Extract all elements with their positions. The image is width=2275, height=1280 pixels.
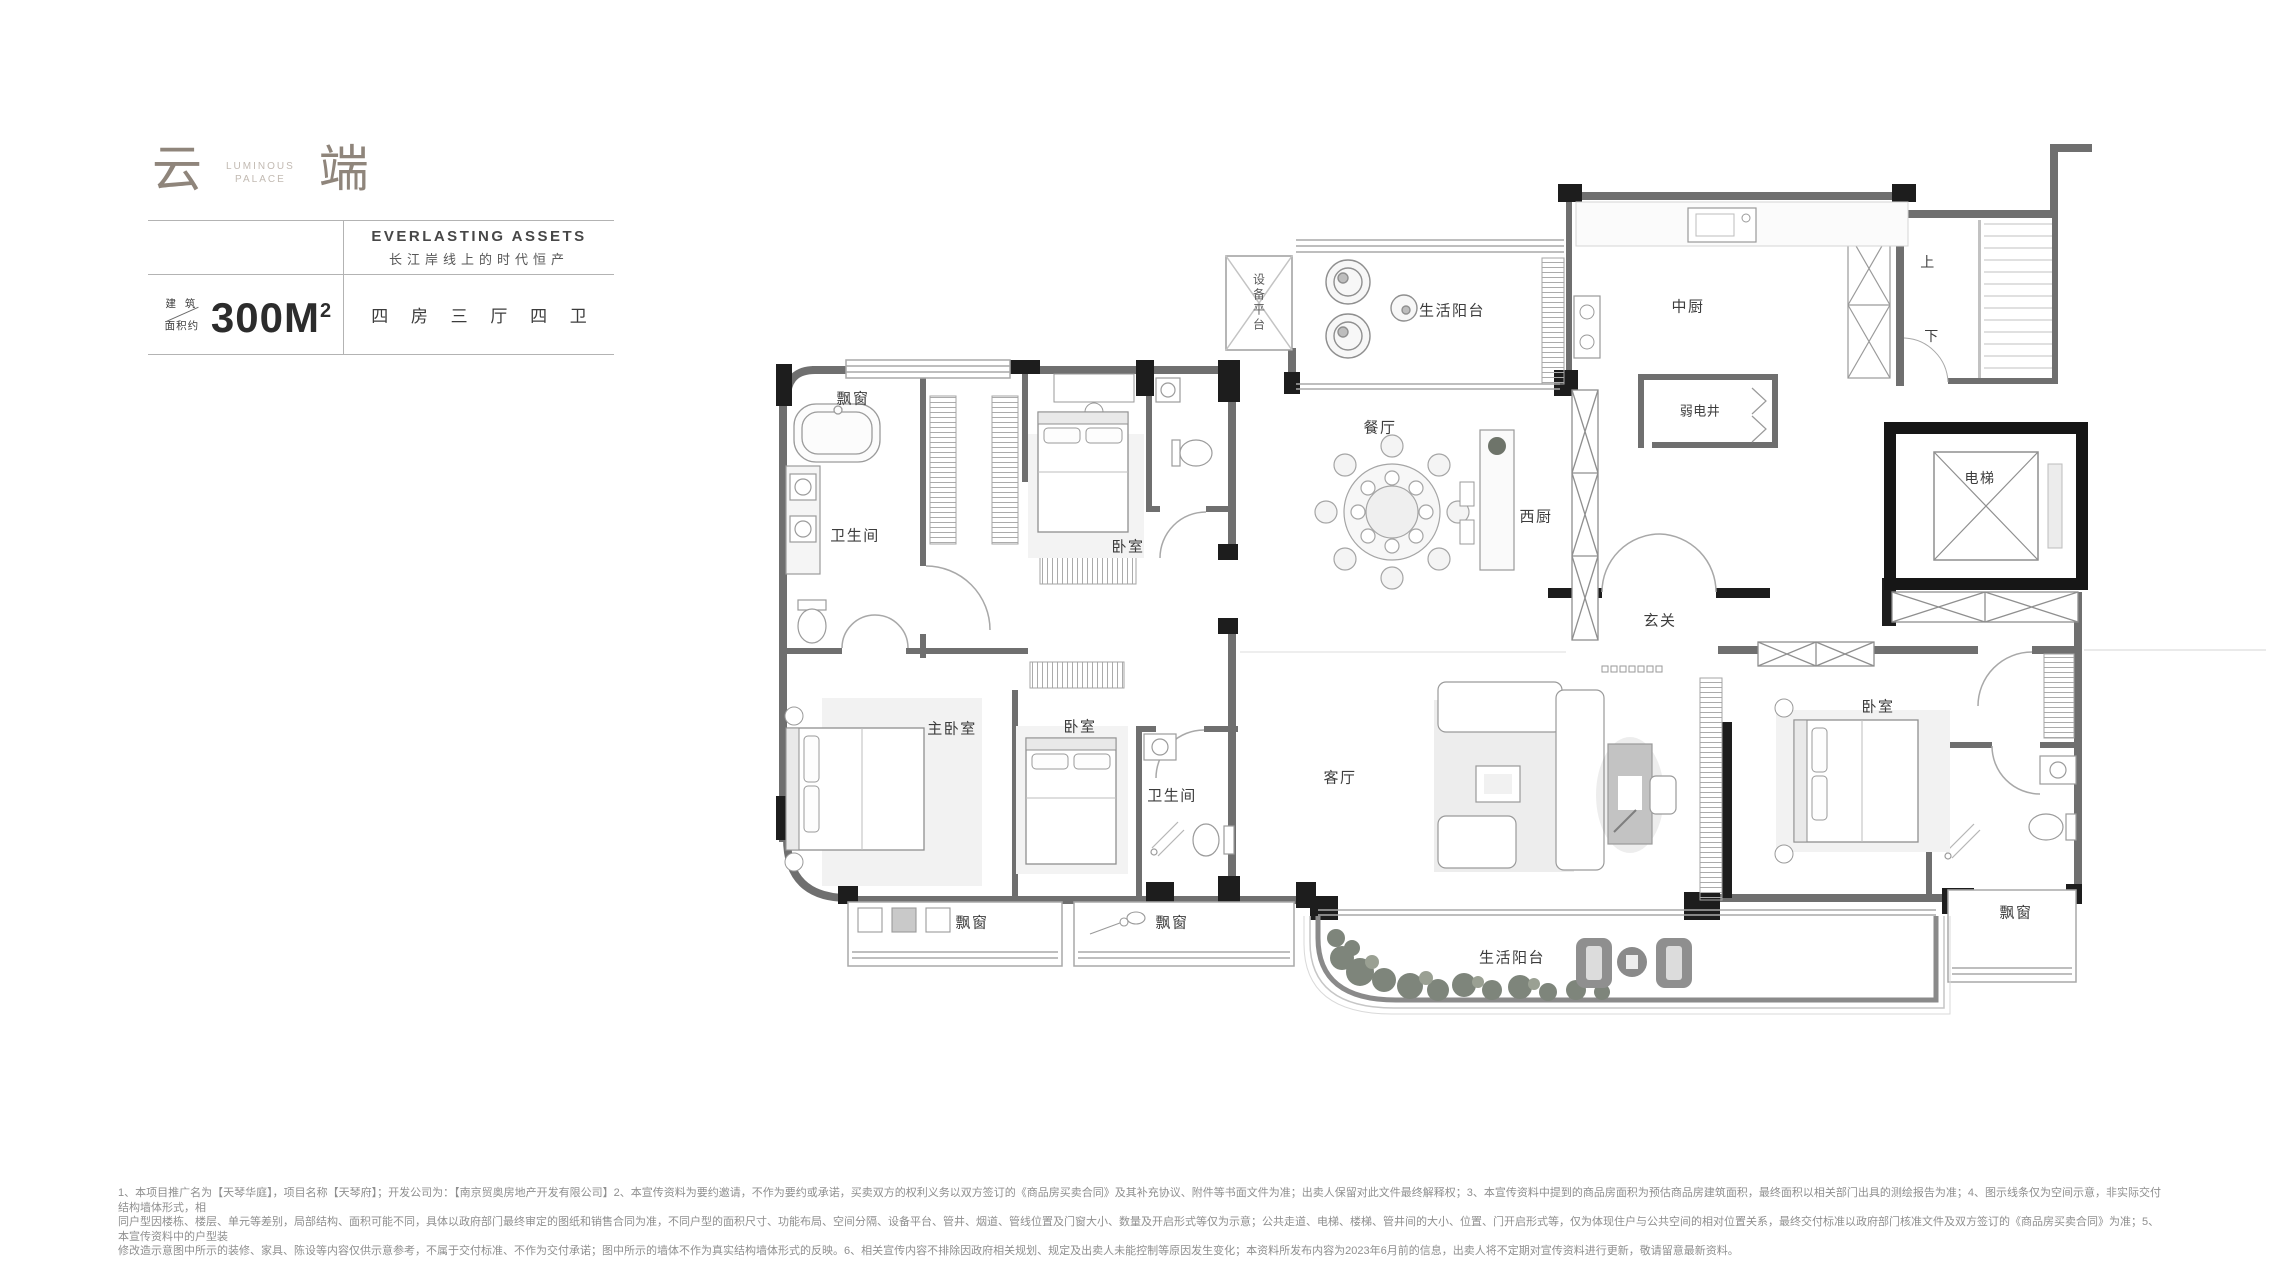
floorplan-drawing	[0, 0, 2275, 1280]
washing-machines	[1326, 260, 1417, 358]
vanity	[786, 466, 820, 574]
room-label-dining-room: 餐厅	[1363, 417, 1396, 438]
room-label-foyer: 玄关	[1643, 610, 1676, 631]
room-label-living-room: 客厅	[1323, 767, 1356, 788]
disclaimer-line-2: 同户型因楼栋、楼层、单元等差别，局部结构、面积可能不同，具体以政府部门最终审定的…	[118, 1215, 2170, 1244]
room-label-bedroom-north: 卧室	[1111, 536, 1144, 557]
bedroom-north-furniture	[1028, 374, 1144, 558]
balcony-plants	[1327, 929, 1610, 1001]
disclaimer: 1、本项目推广名为【天琴华庭】，项目名称【天琴府】；开发公司为：【南京贸奥房地产…	[118, 1186, 2170, 1259]
room-label-bathroom-middle: 卫生间	[1147, 785, 1197, 806]
room-label-master-bedroom: 主卧室	[927, 718, 977, 739]
room-label-bay-window-top-left: 飘窗	[836, 388, 869, 409]
foyer-cabinet-dots	[1602, 666, 1662, 672]
bathroom-east-fixtures	[1945, 756, 2076, 859]
bedroom-east-railing	[1758, 642, 1874, 666]
stairs	[1904, 220, 2052, 382]
toilet-master	[798, 600, 826, 643]
room-label-stairs-down: 下	[1924, 326, 1940, 346]
room-label-chinese-kitchen: 中厨	[1671, 296, 1704, 317]
disclaimer-line-1: 1、本项目推广名为【天琴华庭】，项目名称【天琴府】；开发公司为：【南京贸奥房地产…	[118, 1186, 2170, 1215]
bedroom-west-furniture	[1016, 726, 1128, 874]
shaft-chevrons	[1752, 388, 1766, 442]
kitchen-cabinet	[1848, 232, 1890, 378]
room-label-utility-shaft: 弱电井	[1680, 401, 1721, 420]
living-room-furniture	[1240, 652, 1676, 872]
floorplan-page: 云 LUMINOUS PALACE 端 EVERLASTING ASSETS 长…	[0, 0, 2275, 1280]
room-label-bedroom-east: 卧室	[1861, 696, 1894, 717]
room-label-elevator: 电梯	[1965, 468, 1996, 488]
room-label-bay-window-west: 飘窗	[1155, 912, 1188, 933]
disclaimer-line-3: 修改造示意图中所示的装修、家具、陈设等内容仅供示意参考，不属于交付标准、不作为交…	[118, 1244, 2170, 1259]
wc-north	[1156, 378, 1212, 466]
bedroom-east-furniture	[1775, 699, 1950, 863]
room-label-bay-window-east: 飘窗	[1999, 902, 2032, 923]
room-label-bedroom-west: 卧室	[1063, 716, 1096, 737]
dining-table	[1315, 435, 1469, 589]
balcony-chairs	[1576, 938, 1692, 988]
elevator-shaft	[1890, 428, 2082, 584]
room-label-bathroom-master: 卫生间	[830, 525, 880, 546]
corridor-railing	[1892, 592, 2078, 622]
bathtub	[794, 404, 880, 462]
kitchen-island	[1460, 430, 1514, 570]
room-label-service-balcony-top: 生活阳台	[1419, 300, 1485, 321]
room-label-service-balcony-bottom: 生活阳台	[1479, 947, 1545, 968]
room-label-equipment-platform: 设备平台	[1251, 273, 1268, 333]
room-label-western-kitchen: 西厨	[1519, 506, 1552, 527]
shaft-column	[1572, 390, 1598, 640]
room-label-bay-window-master: 飘窗	[955, 912, 988, 933]
room-label-stairs-up: 上	[1920, 252, 1936, 272]
